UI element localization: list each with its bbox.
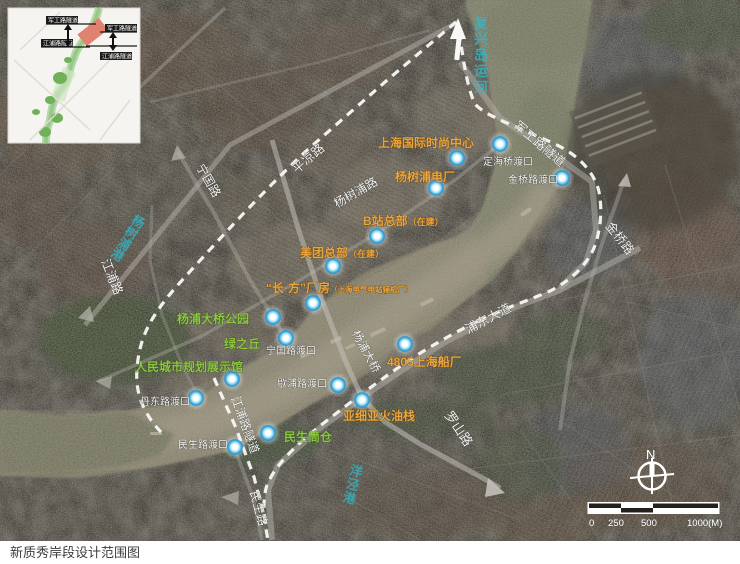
svg-text:民生路渡口: 民生路渡口 [178, 438, 228, 451]
svg-text:绿之丘: 绿之丘 [224, 336, 260, 351]
svg-text:军工路隧道: 军工路隧道 [48, 17, 78, 25]
svg-text:新质秀岸段设计范围图: 新质秀岸段设计范围图 [10, 545, 140, 560]
svg-text:250: 250 [608, 518, 624, 529]
svg-text:1000(M): 1000(M) [687, 518, 722, 529]
svg-text:军工路隧道: 军工路隧道 [107, 25, 137, 33]
svg-text:杨树浦电厂: 杨树浦电厂 [395, 169, 455, 184]
svg-text:亚细亚火油栈: 亚细亚火油栈 [343, 408, 415, 423]
svg-text:杨浦大桥公园: 杨浦大桥公园 [177, 311, 249, 326]
svg-text:丹东路渡口: 丹东路渡口 [140, 395, 190, 408]
svg-text:民生筒仓: 民生筒仓 [284, 429, 333, 444]
svg-text:4805上海船厂: 4805上海船厂 [387, 354, 462, 369]
svg-text:歇浦路渡口: 歇浦路渡口 [277, 377, 327, 390]
svg-text:江浦路隧道: 江浦路隧道 [102, 53, 132, 61]
svg-text:金桥路渡口: 金桥路渡口 [508, 173, 558, 186]
svg-text:人民城市规划展示馆: 人民城市规划展示馆 [135, 359, 243, 374]
svg-text:500: 500 [641, 518, 657, 529]
svg-text:0: 0 [589, 518, 594, 529]
svg-text:复兴岛运河: 复兴岛运河 [473, 15, 489, 95]
svg-text:上海国际时尚中心: 上海国际时尚中心 [378, 135, 474, 150]
svg-text:宁国路渡口: 宁国路渡口 [266, 344, 316, 357]
svg-text:定海桥渡口: 定海桥渡口 [483, 155, 533, 168]
svg-text:N: N [646, 447, 655, 462]
